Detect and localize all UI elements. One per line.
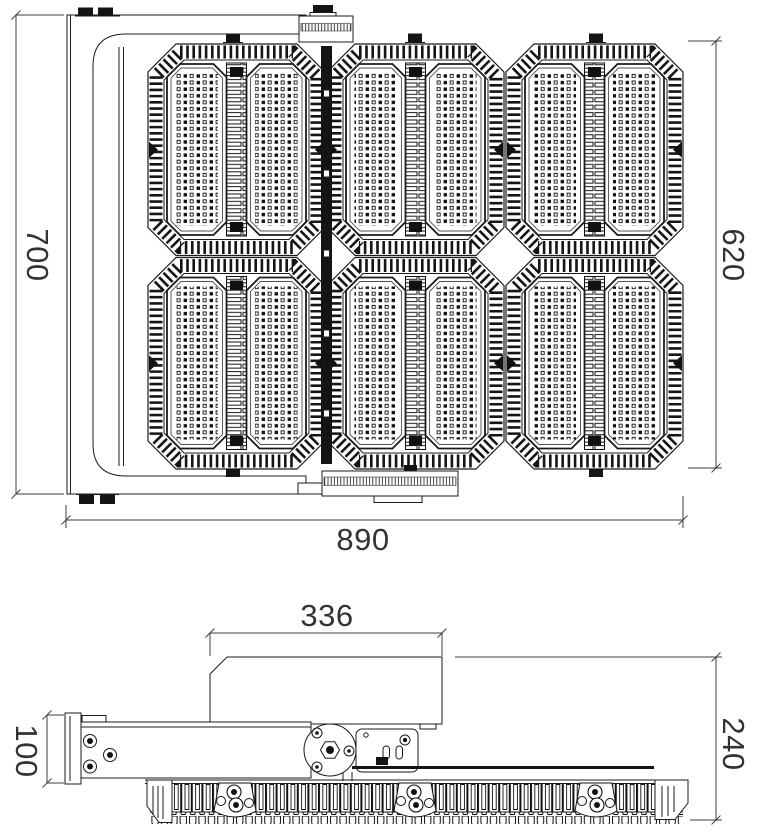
led-panel [426, 278, 486, 449]
pivot-side-plate [356, 729, 418, 772]
heatsink-junction-bolts [214, 783, 256, 817]
led-panel [605, 64, 665, 235]
led-panel [167, 64, 227, 235]
bracket-bolt [78, 8, 93, 17]
led-module [327, 44, 504, 256]
bracket-bolt [98, 8, 113, 17]
heatsink-junction-bolts [394, 783, 436, 817]
heatsink-junction-bolts [575, 783, 617, 817]
dim-label-336: 336 [300, 598, 353, 633]
arm-end-plate [65, 713, 81, 784]
dim-label-700: 700 [20, 228, 55, 281]
bracket-foot [79, 495, 94, 504]
bracket-foot [100, 495, 115, 504]
dim-label-890: 890 [336, 522, 389, 557]
led-panel [247, 278, 307, 449]
drawing-sheet: 700 620 890 [0, 0, 759, 839]
led-module [148, 258, 325, 470]
bottom-lock-hub [298, 465, 458, 503]
front-view: 700 620 890 [12, 5, 751, 557]
dim-label-100: 100 [9, 724, 44, 777]
dim-label-620: 620 [716, 228, 751, 281]
led-module-grid [148, 44, 683, 469]
dimension-box-width: 336 [206, 598, 447, 656]
center-hinge-channel [321, 46, 332, 464]
led-panel [525, 64, 585, 235]
dimension-arm-height: 100 [9, 711, 64, 788]
led-panel [346, 64, 406, 235]
driver-box [210, 657, 442, 729]
top-pivot-hub [299, 5, 353, 42]
led-panel [525, 278, 585, 449]
lamp-top-edge [352, 766, 654, 769]
led-module [327, 258, 504, 470]
dimension-overall-width: 890 [62, 496, 688, 557]
led-module [506, 44, 683, 256]
led-panel [605, 278, 665, 449]
mounting-arm [65, 713, 311, 784]
led-panel [346, 278, 406, 449]
dimension-overall-height: 700 [12, 11, 65, 499]
dimension-body-height: 620 [688, 37, 751, 473]
led-panel [426, 64, 486, 235]
pivot-joint [304, 724, 356, 776]
led-module [506, 258, 683, 470]
end-cap-right [655, 780, 688, 820]
led-panel [247, 64, 307, 235]
side-view: 336 100 240 [9, 598, 751, 825]
dim-label-240: 240 [716, 717, 751, 770]
led-panel [167, 278, 227, 449]
led-module [148, 44, 325, 256]
technical-drawing: 700 620 890 [0, 0, 759, 839]
